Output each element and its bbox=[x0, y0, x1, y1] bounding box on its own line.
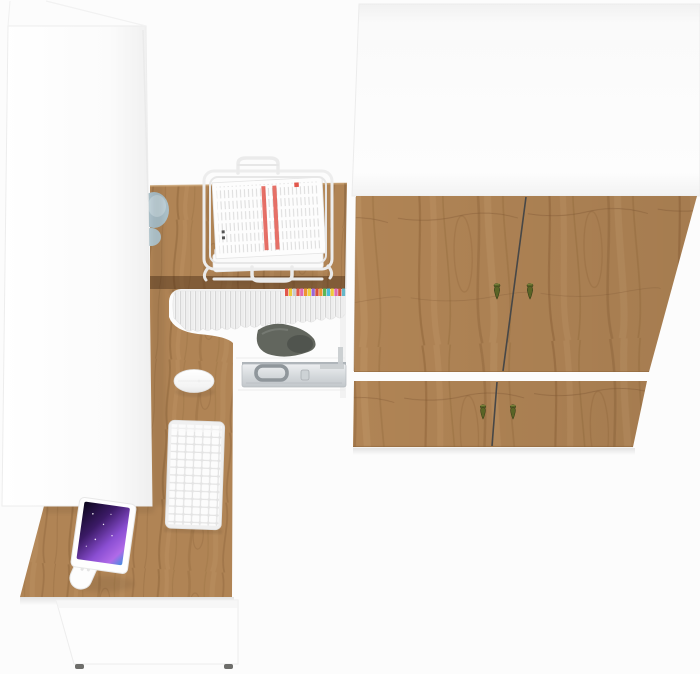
drawer-foot-right bbox=[224, 664, 233, 669]
wardrobe bbox=[352, 4, 700, 455]
wardrobe-lower-doors bbox=[353, 381, 647, 447]
drawer-foot-left bbox=[75, 664, 84, 669]
paper-tray bbox=[204, 158, 332, 284]
tall-cabinet bbox=[2, 1, 167, 513]
render-canvas: Top-down 3D render of a home office furn… bbox=[0, 0, 700, 674]
wardrobe-floor-shadow bbox=[353, 448, 635, 455]
scene-office-furniture-top-view: Top-down 3D render of a home office furn… bbox=[0, 0, 700, 674]
documents bbox=[212, 177, 326, 259]
file-row bbox=[173, 289, 345, 332]
monitor-screen bbox=[76, 502, 130, 566]
drawer-unit bbox=[56, 600, 238, 669]
wardrobe-upper-doors bbox=[354, 196, 697, 372]
under-desk-bag bbox=[257, 324, 316, 357]
keyboard bbox=[164, 420, 226, 534]
mouse bbox=[174, 370, 215, 398]
wardrobe-top-panel bbox=[352, 4, 700, 196]
